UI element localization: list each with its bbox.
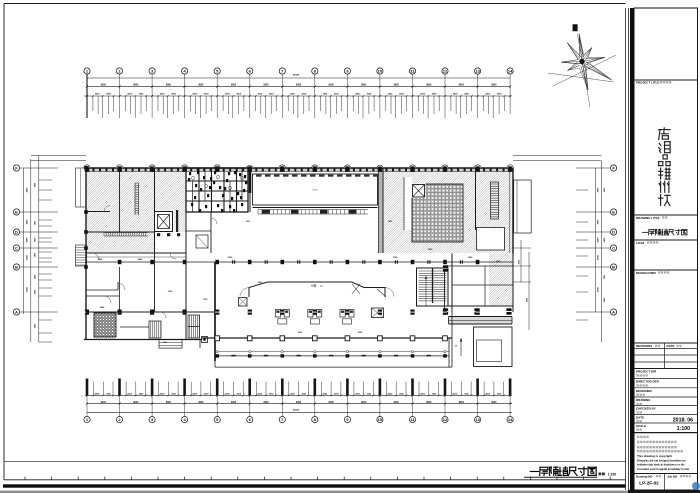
svg-text:9000: 9000 [296,402,302,404]
svg-text:9000: 9000 [459,402,465,404]
svg-text:9000: 9000 [263,402,269,404]
svg-text:9000: 9000 [231,84,237,86]
svg-text:14: 14 [508,417,513,422]
svg-text:DRAWING: DRAWING [636,398,651,402]
svg-text:9000: 9000 [329,84,335,86]
svg-text:9000: 9000 [101,84,107,86]
svg-text:10: 10 [378,68,383,73]
svg-text:9000: 9000 [394,84,400,86]
svg-text:E: E [612,209,615,214]
svg-text:DATE: DATE [636,416,644,420]
svg-text:Corvadas asid ln igadal irmadd: Corvadas asid ln igadal irmaddaly ln ant… [637,467,689,471]
svg-text:9000: 9000 [198,402,204,404]
svg-text:12: 12 [443,68,448,73]
svg-text:C: C [612,245,615,250]
svg-text:Drawales dal nat fovignd dremb: Drawales dal nat fovignd dremblar ery [637,458,686,462]
svg-text:49425: 49425 [293,409,300,412]
svg-text:E: E [15,209,18,214]
svg-text:DESIGNER: DESIGNER [636,389,653,393]
svg-text:LIAST: LIAST [636,241,645,245]
svg-text:D: D [15,229,18,234]
svg-text:9000: 9000 [198,84,204,86]
svg-text:B: B [612,264,615,269]
svg-text:9000: 9000 [459,84,465,86]
svg-text:**: ** [82,83,84,85]
svg-text:9000: 9000 [491,402,497,404]
svg-text:9000: 9000 [133,84,139,86]
svg-text:9000: 9000 [426,402,432,404]
svg-text:**: ** [81,396,83,398]
svg-text:REVISIONS: REVISIONS [636,344,652,348]
svg-text:9000: 9000 [361,84,367,86]
svg-text:D: D [612,229,615,234]
svg-text:A: A [15,309,18,314]
svg-text:14: 14 [508,68,513,73]
svg-text:DATE: DATE [667,344,675,348]
svg-text:10: 10 [378,417,383,422]
svg-text:9000: 9000 [426,84,432,86]
svg-text:49425: 49425 [293,74,300,77]
svg-text:PROJECT LITLE: PROJECT LITLE [636,81,659,85]
svg-text:brtladen dak dask al dinditons: brtladen dak dask al dinditonst or dls [637,463,685,467]
svg-text:**: ** [170,90,172,92]
svg-text:1:100: 1:100 [677,426,690,432]
svg-text:12: 12 [443,417,448,422]
svg-text:9000: 9000 [166,84,172,86]
svg-text:A: A [612,309,615,314]
svg-text:9725: 9725 [313,190,319,192]
svg-text:13: 13 [475,417,480,422]
svg-text:9000: 9000 [361,402,367,404]
svg-text:9000: 9000 [133,402,139,404]
svg-text:9000: 9000 [166,402,172,404]
svg-text:9000: 9000 [296,84,302,86]
svg-text:9000: 9000 [263,84,269,86]
svg-text:CHECKED BY: CHECKED BY [636,407,656,411]
svg-text:DRAWING LITLE: DRAWING LITLE [636,216,660,220]
svg-text:LP-2F-02: LP-2F-02 [639,481,659,486]
svg-text:C: C [15,245,18,250]
svg-text:Drawing NO: Drawing NO [636,475,653,479]
svg-text:9000: 9000 [329,402,335,404]
svg-text:DESIGN FIRM: DESIGN FIRM [636,271,656,275]
svg-text:PROJECT DIR: PROJECT DIR [636,370,657,374]
svg-text:B: B [15,264,18,269]
svg-text:9000: 9000 [491,84,497,86]
svg-text:1:100: 1:100 [608,473,617,477]
svg-text:9000: 9000 [394,402,400,404]
svg-text:13: 13 [475,68,480,73]
svg-text:9000: 9000 [231,402,237,404]
svg-text:DIRECTOR DER: DIRECTOR DER [636,380,660,384]
svg-text:This drawing is copyright: This drawing is copyright [637,454,672,458]
svg-text:SCALE: SCALE [636,424,646,428]
svg-text:2018. 06: 2018. 06 [673,418,693,424]
svg-text:9000: 9000 [101,402,107,404]
svg-text:Job NO: Job NO [667,475,678,479]
